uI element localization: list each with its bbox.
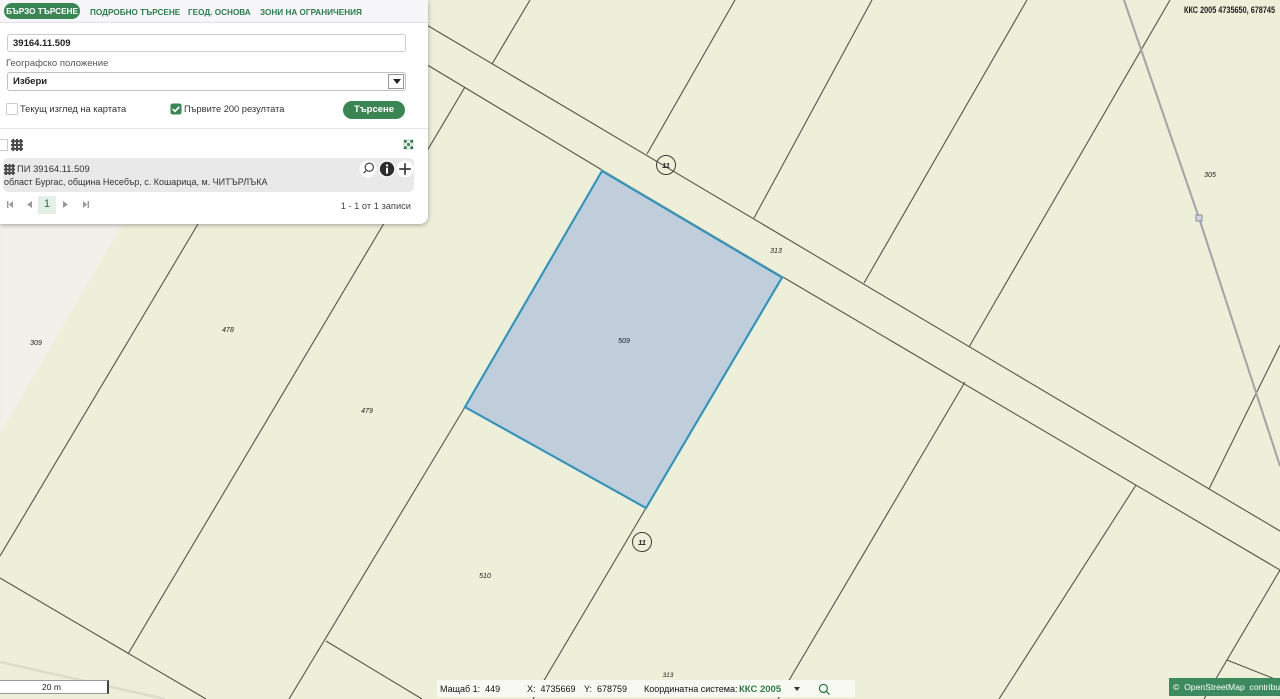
svg-text:11: 11 (638, 538, 646, 547)
svg-text:313: 313 (770, 248, 782, 255)
svg-text:478: 478 (222, 327, 234, 334)
svg-text:479: 479 (361, 408, 373, 415)
svg-text:309: 309 (30, 340, 42, 347)
svg-text:305: 305 (1204, 172, 1216, 179)
svg-text:11: 11 (662, 161, 670, 170)
svg-text:510: 510 (479, 573, 491, 580)
svg-text:509: 509 (618, 338, 630, 345)
svg-text:ККС 2005 4735650, 678745: ККС 2005 4735650, 678745 (1184, 5, 1275, 15)
svg-text:313: 313 (663, 672, 674, 679)
